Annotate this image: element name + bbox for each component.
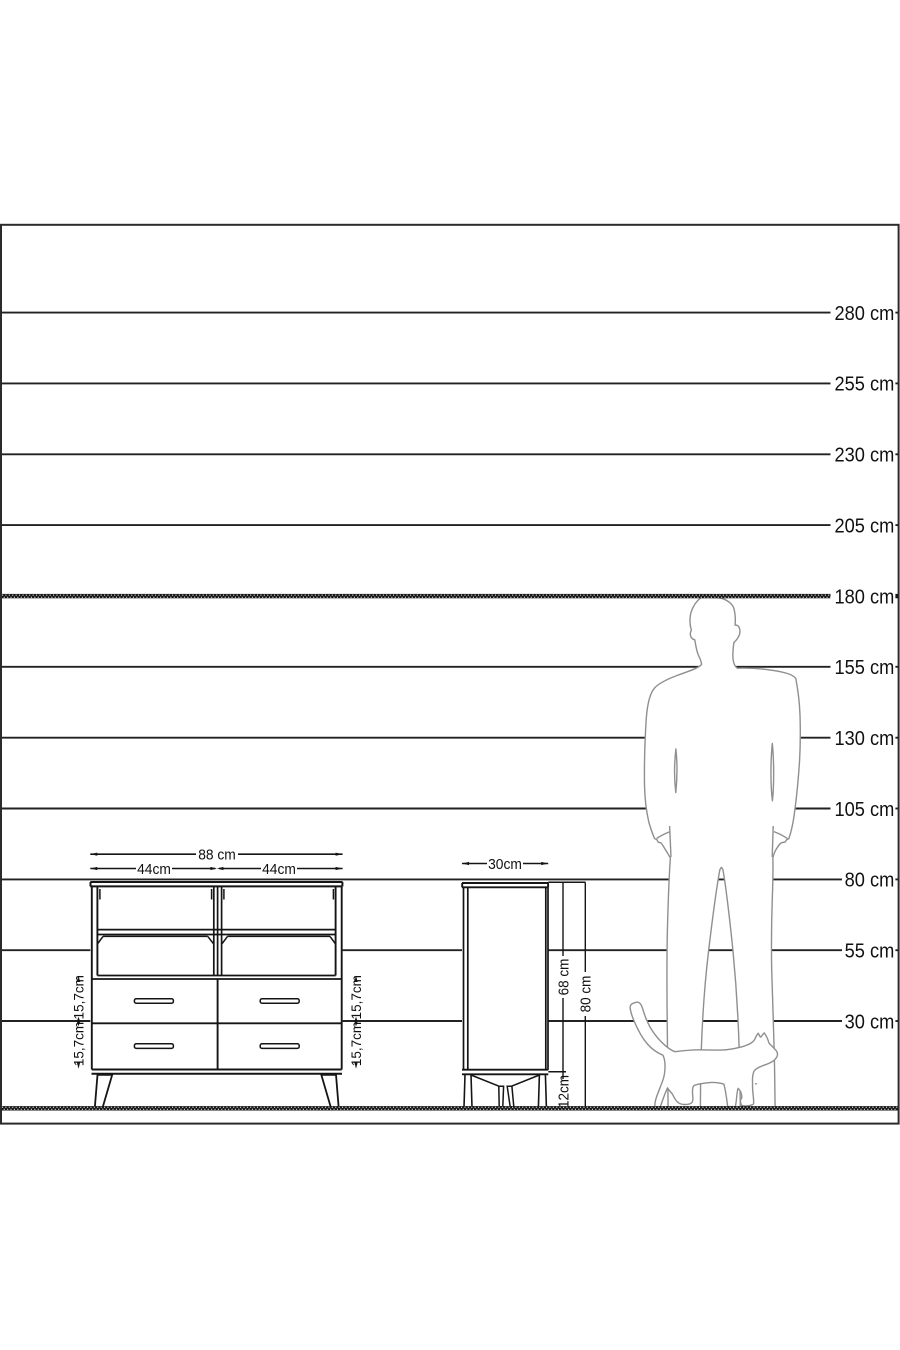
svg-text:280 cm: 280 cm: [835, 302, 895, 325]
svg-text:80 cm: 80 cm: [578, 976, 595, 1013]
svg-text:15,7cm: 15,7cm: [349, 1022, 364, 1066]
svg-text:15,7cm: 15,7cm: [349, 975, 364, 1019]
svg-text:55 cm: 55 cm: [845, 940, 895, 963]
svg-text:230 cm: 230 cm: [835, 444, 895, 467]
svg-text:15,7cm: 15,7cm: [71, 975, 86, 1019]
svg-text:15,7cm: 15,7cm: [71, 1022, 86, 1066]
svg-text:80 cm: 80 cm: [845, 869, 895, 892]
svg-text:205 cm: 205 cm: [835, 514, 895, 537]
svg-text:44cm: 44cm: [137, 861, 171, 878]
svg-text:68 cm: 68 cm: [556, 959, 573, 996]
svg-text:180 cm: 180 cm: [835, 585, 895, 608]
svg-text:12cm: 12cm: [556, 1075, 573, 1108]
svg-text:30cm: 30cm: [488, 856, 522, 873]
svg-text:88 cm: 88 cm: [198, 847, 236, 864]
svg-text:130 cm: 130 cm: [835, 727, 895, 750]
svg-text:255 cm: 255 cm: [835, 373, 895, 396]
svg-text:105 cm: 105 cm: [835, 798, 895, 821]
svg-text:44cm: 44cm: [262, 861, 296, 878]
svg-text:30 cm: 30 cm: [845, 1010, 895, 1033]
svg-text:155 cm: 155 cm: [835, 656, 895, 679]
